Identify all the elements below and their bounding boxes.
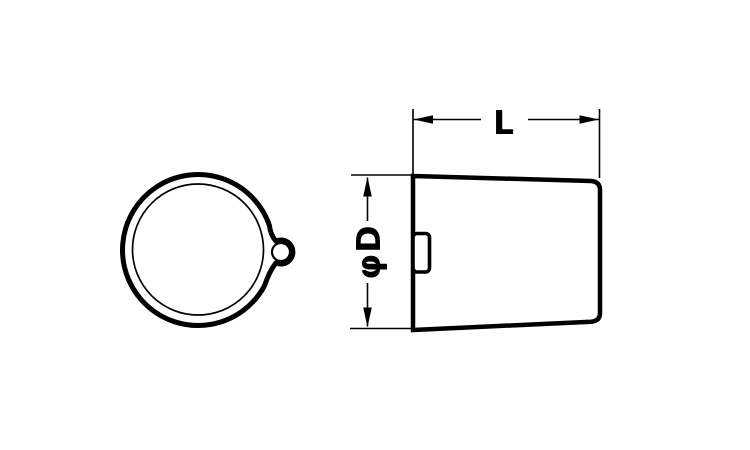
diameter-dimension: φD [349, 175, 413, 329]
front-view [123, 174, 293, 325]
cap-side-outline [413, 176, 600, 330]
length-dimension-label: L [493, 103, 515, 142]
tab-hole-circle [272, 243, 290, 261]
diameter-dimension-label: φD [349, 224, 388, 279]
diameter-arrow-bottom [363, 308, 372, 328]
length-dimension: L [413, 103, 600, 178]
length-arrow-left [414, 115, 434, 124]
side-latch-tab [413, 234, 430, 273]
length-arrow-right [580, 115, 600, 124]
cap-outer-silhouette [123, 174, 293, 325]
side-view [413, 176, 600, 330]
end-cap-drawing: L φD [0, 0, 750, 450]
technical-drawing-canvas: L φD [0, 0, 750, 450]
diameter-arrow-top [363, 177, 372, 197]
